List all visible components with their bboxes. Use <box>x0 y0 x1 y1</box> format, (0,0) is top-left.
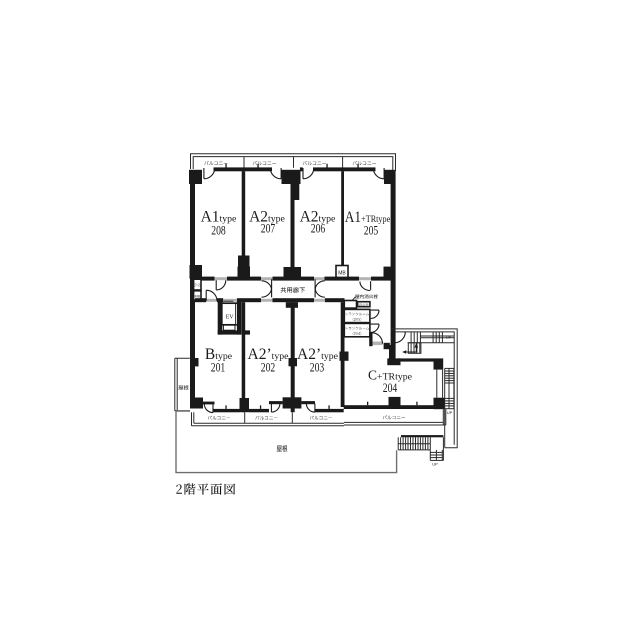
svg-text:206: 206 <box>311 221 326 236</box>
svg-text:204: 204 <box>383 380 398 395</box>
svg-text:UP: UP <box>446 335 452 340</box>
svg-text:208: 208 <box>211 223 226 238</box>
svg-text:MB: MB <box>195 294 201 298</box>
svg-text:MB: MB <box>240 271 248 277</box>
svg-text:UP: UP <box>447 410 453 415</box>
svg-text:202: 202 <box>261 359 276 374</box>
svg-text:UP: UP <box>432 461 438 466</box>
svg-text:203: 203 <box>310 359 325 374</box>
svg-text:205: 205 <box>364 223 379 238</box>
svg-text:MB: MB <box>338 271 346 277</box>
svg-text:207: 207 <box>261 221 276 236</box>
svg-text:EV: EV <box>226 314 235 320</box>
svg-text:201: 201 <box>211 359 226 374</box>
